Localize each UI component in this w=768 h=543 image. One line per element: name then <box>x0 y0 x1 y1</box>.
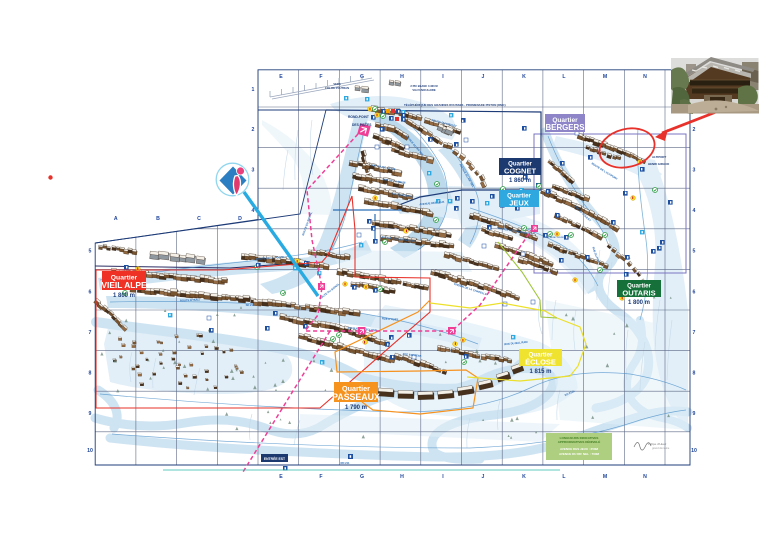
svg-text:HENRI GIRAUD: HENRI GIRAUD <box>648 162 669 166</box>
svg-text:1: 1 <box>252 87 255 93</box>
svg-text:8: 8 <box>693 371 696 377</box>
svg-text:10: 10 <box>87 448 93 454</box>
svg-text:VIA FUNICULAIRE: VIA FUNICULAIRE <box>412 88 436 92</box>
svg-text:A: A <box>114 216 118 222</box>
svg-text:2: 2 <box>252 127 255 133</box>
svg-text:N: N <box>643 74 647 80</box>
svg-text:JEUX: JEUX <box>509 198 529 207</box>
svg-text:9: 9 <box>693 411 696 417</box>
svg-text:G: G <box>360 474 364 480</box>
svg-text:8: 8 <box>89 371 92 377</box>
svg-text:L'Alpe d'Huez: L'Alpe d'Huez <box>648 442 667 446</box>
svg-text:ÉCLOSE: ÉCLOSE <box>525 357 556 366</box>
svg-text:ENTRÉE EST: ENTRÉE EST <box>264 456 286 461</box>
svg-text:AVENUE DES JEUX : 250M: AVENUE DES JEUX : 250M <box>560 447 599 451</box>
svg-text:N: N <box>643 474 647 480</box>
svg-text:ROND-POINT: ROND-POINT <box>348 115 369 119</box>
svg-text:1 800 m: 1 800 m <box>113 293 135 299</box>
svg-text:H: H <box>400 474 404 480</box>
svg-text:3: 3 <box>693 168 696 174</box>
svg-text:APPROXIMATIVES DÉNIVELÉ: APPROXIMATIVES DÉNIVELÉ <box>558 439 600 444</box>
svg-text:F: F <box>319 74 322 80</box>
svg-text:D: D <box>238 216 242 222</box>
svg-text:RD 211: RD 211 <box>341 461 350 465</box>
svg-text:7: 7 <box>693 330 696 336</box>
svg-text:AVENUE DU RIF NEL : 700M: AVENUE DU RIF NEL : 700M <box>559 452 600 456</box>
svg-text:C: C <box>197 216 201 222</box>
svg-text:DES PISTES: DES PISTES <box>352 123 372 127</box>
svg-text:B: B <box>156 216 160 222</box>
svg-text:COGNET: COGNET <box>504 166 537 175</box>
svg-text:1 790 m: 1 790 m <box>345 405 367 411</box>
svg-text:PASSEAUX: PASSEAUX <box>332 392 380 402</box>
svg-text:9: 9 <box>89 411 92 417</box>
svg-text:E: E <box>279 474 283 480</box>
svg-text:SD 211: SD 211 <box>246 303 255 307</box>
svg-text:M: M <box>603 74 607 80</box>
svg-text:3: 3 <box>252 168 255 174</box>
svg-text:4: 4 <box>693 208 696 214</box>
svg-text:5: 5 <box>693 249 696 255</box>
svg-text:E: E <box>279 74 283 80</box>
svg-text:M: M <box>603 474 607 480</box>
svg-text:5: 5 <box>89 249 92 255</box>
svg-text:2 PIC BLANC 3 330 M: 2 PIC BLANC 3 330 M <box>410 84 438 88</box>
svg-text:K: K <box>522 474 526 480</box>
svg-text:1 800 m: 1 800 m <box>628 300 650 306</box>
svg-text:K: K <box>522 74 526 80</box>
svg-text:6: 6 <box>89 289 92 295</box>
svg-text:1 815 m: 1 815 m <box>529 369 551 375</box>
svg-text:21 28 36 · 6 9 32: 21 28 36 · 6 9 32 <box>547 237 564 239</box>
svg-text:grand domaine: grand domaine <box>652 446 670 450</box>
svg-text:J: J <box>482 74 485 80</box>
svg-text:TÉLÉPHÉRIQUE DES GRANDES ROUSS: TÉLÉPHÉRIQUE DES GRANDES ROUSSES - PROME… <box>404 102 506 107</box>
svg-text:10: 10 <box>691 448 697 454</box>
svg-text:J: J <box>482 474 485 480</box>
svg-text:COL DE POUTRAN: COL DE POUTRAN <box>325 86 349 90</box>
svg-text:1 860 m: 1 860 m <box>509 178 531 184</box>
svg-text:OUTARIS: OUTARIS <box>622 288 655 297</box>
svg-text:2: 2 <box>693 127 696 133</box>
svg-text:7: 7 <box>89 330 92 336</box>
svg-text:F: F <box>319 474 322 480</box>
svg-text:BERGERS: BERGERS <box>545 123 584 132</box>
svg-text:VIEIL ALPE: VIEIL ALPE <box>101 280 147 290</box>
svg-text:H: H <box>400 74 404 80</box>
svg-text:VERS: VERS <box>333 82 341 86</box>
svg-text:6: 6 <box>693 289 696 295</box>
svg-text:ALTIPORT: ALTIPORT <box>652 155 666 159</box>
